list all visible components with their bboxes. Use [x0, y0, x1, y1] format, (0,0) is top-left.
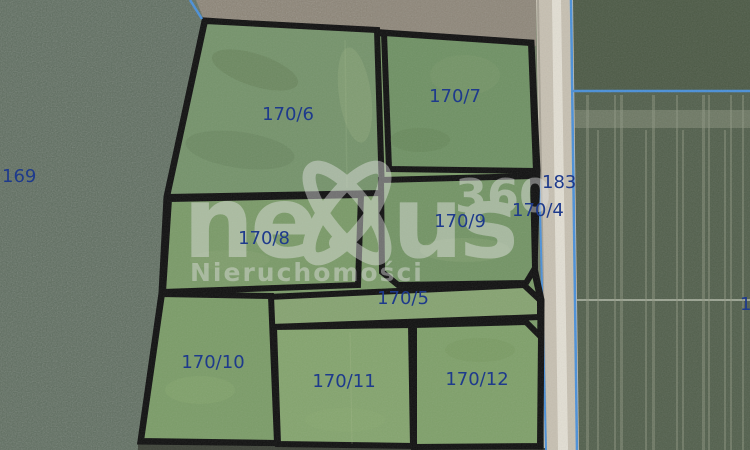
parcel-label-170-11: 170/11 [312, 371, 375, 392]
label-road-parcel-170-4: 170/4 [512, 200, 564, 221]
label-west-field-169: 169 [2, 166, 36, 187]
watermark-subtitle: Nieruchomości [190, 258, 424, 287]
parcel-label-170-6: 170/6 [262, 104, 314, 125]
parcel-label-170-12: 170/12 [445, 369, 508, 390]
parcel-label-170-7: 170/7 [429, 86, 481, 107]
label-road-183: 183 [542, 172, 576, 193]
cadastral-map-screenshot: ne us 360 Nieruchomości 170/6 170/7 170/… [0, 0, 750, 450]
cadastral-map-image: ne us 360 Nieruchomości 170/6 170/7 170/… [0, 0, 750, 450]
watermark: ne us 360 Nieruchomości [183, 157, 551, 287]
label-east-edge-partial: 1 [740, 294, 750, 315]
parcel-label-170-9: 170/9 [434, 211, 486, 232]
parcel-label-170-10: 170/10 [181, 352, 244, 373]
parcel-label-170-5: 170/5 [377, 288, 429, 309]
parcel-label-170-8: 170/8 [238, 228, 290, 249]
